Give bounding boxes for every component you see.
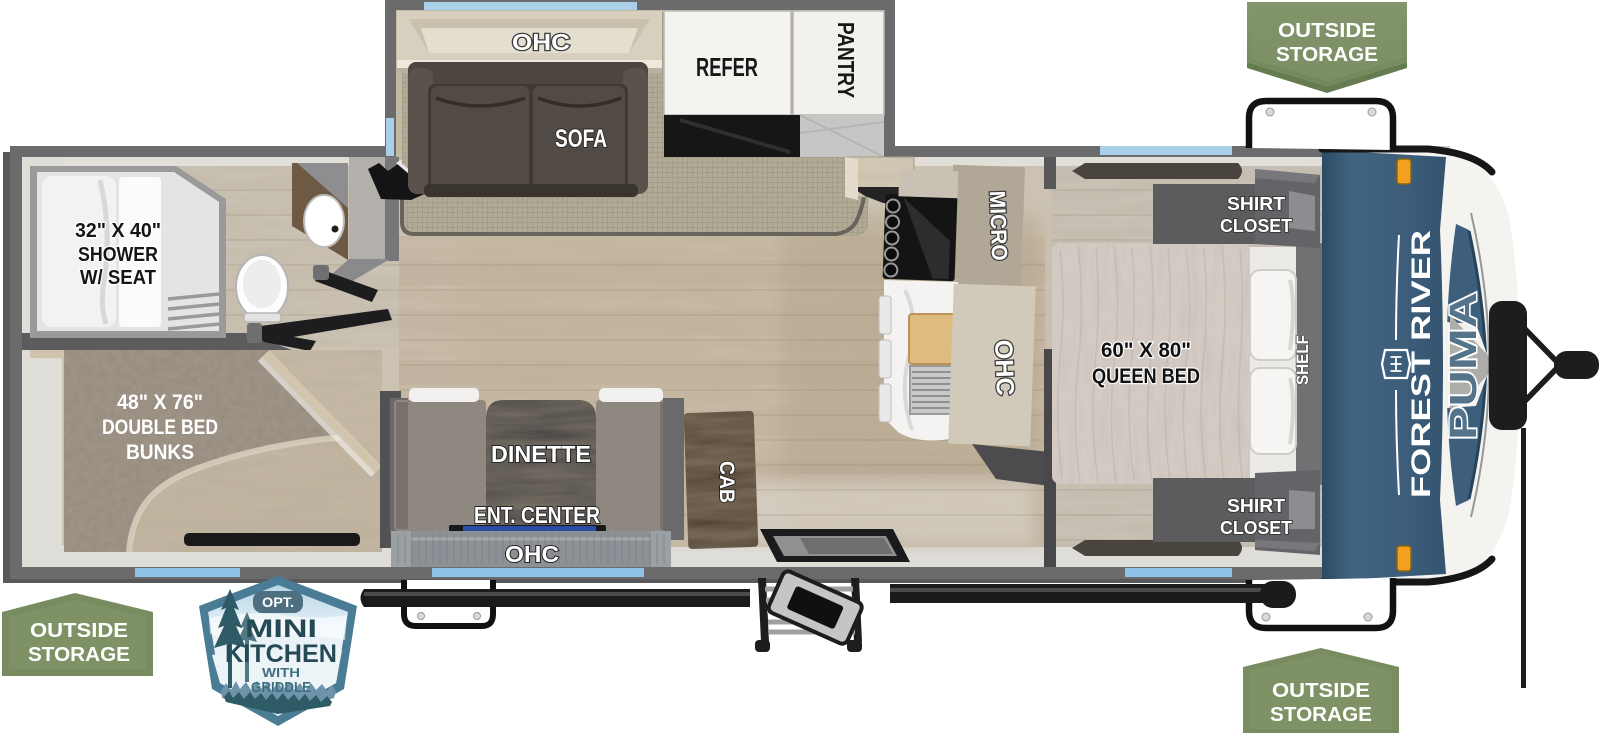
svg-text:W/ SEAT: W/ SEAT — [80, 267, 156, 289]
svg-text:FOREST RIVER: FOREST RIVER — [1406, 230, 1436, 498]
svg-text:SHIRT: SHIRT — [1227, 496, 1285, 516]
svg-text:QUEEN BED: QUEEN BED — [1092, 365, 1200, 388]
svg-text:OUTSIDE: OUTSIDE — [30, 620, 128, 642]
svg-text:OUTSIDE: OUTSIDE — [1278, 20, 1376, 42]
svg-text:CLOSET: CLOSET — [1220, 216, 1292, 236]
svg-text:ENT. CENTER: ENT. CENTER — [474, 502, 600, 528]
svg-text:CAB: CAB — [715, 461, 738, 503]
svg-text:GRIDDLE: GRIDDLE — [251, 679, 311, 696]
svg-text:OHC: OHC — [512, 29, 570, 55]
svg-text:MICRO: MICRO — [985, 190, 1012, 261]
svg-text:CLOSET: CLOSET — [1220, 518, 1292, 538]
svg-text:32" X 40": 32" X 40" — [75, 220, 161, 242]
svg-text:OHC: OHC — [505, 541, 559, 567]
svg-text:BUNKS: BUNKS — [126, 441, 194, 464]
svg-text:STORAGE: STORAGE — [28, 644, 130, 666]
svg-text:PUMA: PUMA — [1443, 292, 1485, 440]
svg-text:MINI: MINI — [245, 615, 317, 643]
svg-text:PANTRY: PANTRY — [833, 22, 859, 98]
svg-text:SOFA: SOFA — [555, 125, 607, 153]
svg-text:OHC: OHC — [989, 339, 1019, 396]
svg-text:SHIRT: SHIRT — [1227, 194, 1285, 214]
svg-text:OPT.: OPT. — [262, 594, 294, 610]
svg-text:WITH: WITH — [262, 665, 300, 680]
svg-text:DINETTE: DINETTE — [491, 441, 591, 467]
svg-text:OUTSIDE: OUTSIDE — [1272, 680, 1370, 702]
svg-text:KITCHEN: KITCHEN — [225, 640, 337, 668]
svg-text:STORAGE: STORAGE — [1276, 44, 1378, 66]
svg-text:SHELF: SHELF — [1293, 335, 1312, 385]
svg-text:DOUBLE BED: DOUBLE BED — [102, 416, 218, 439]
svg-text:REFER: REFER — [696, 52, 758, 82]
svg-text:60" X 80": 60" X 80" — [1101, 339, 1191, 362]
svg-text:STORAGE: STORAGE — [1270, 704, 1372, 726]
svg-text:48" X 76": 48" X 76" — [117, 391, 203, 414]
svg-text:SHOWER: SHOWER — [78, 244, 158, 266]
